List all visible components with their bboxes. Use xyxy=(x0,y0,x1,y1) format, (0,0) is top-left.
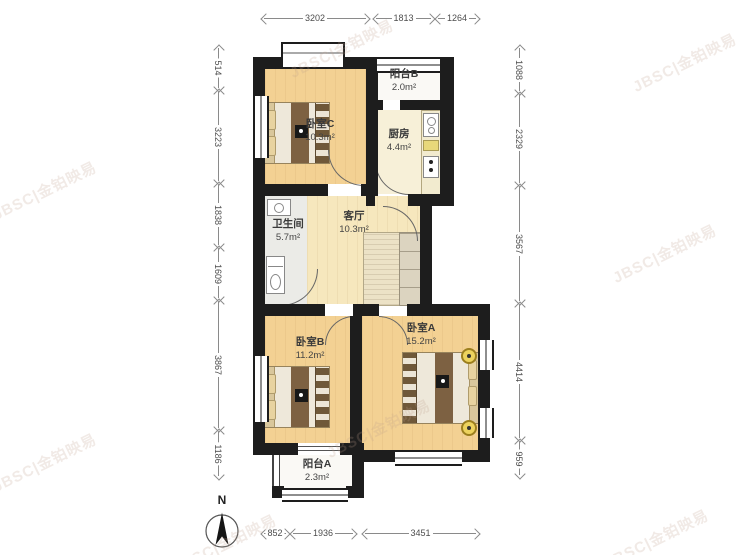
dimension-arrow xyxy=(434,13,445,24)
room-area: 15.2m² xyxy=(406,336,436,348)
watermark: JBSC|金铂映易 xyxy=(0,156,100,225)
tv-box xyxy=(295,389,308,402)
room-label-balcony-a: 阳台A 2.3m² xyxy=(303,458,332,484)
dimension-label: 3867 xyxy=(213,353,223,377)
room-label-bedroom-a: 卧室A 15.2m² xyxy=(406,322,436,348)
dimension-label: 3223 xyxy=(213,124,223,148)
wardrobe xyxy=(403,353,417,423)
room-name: 厨房 xyxy=(388,128,409,140)
watermark: JBSC|金铂映易 xyxy=(601,504,712,555)
compass-needle-icon xyxy=(199,506,245,552)
bay-window xyxy=(281,42,345,69)
dimension-label: 1936 xyxy=(311,528,335,538)
dimension-label: 1186 xyxy=(213,442,223,465)
room-label-balcony-b: 阳台B 2.0m² xyxy=(390,68,419,94)
wall-segment xyxy=(366,194,375,206)
watermark: JBSC|金铂映易 xyxy=(629,28,740,97)
washbasin-icon xyxy=(267,199,291,216)
dimension-arrow xyxy=(213,428,224,439)
floorplan-canvas: 卧室C 10.3m² 阳台B 2.0m² 厨房 4.4m² 卫生间 5.7m² … xyxy=(0,0,740,555)
room-area: 11.2m² xyxy=(296,350,325,362)
pillow xyxy=(468,386,477,406)
dimension-arrow xyxy=(514,44,525,55)
wall-lamp-icon xyxy=(461,420,477,436)
dimension-arrow xyxy=(213,181,224,192)
room-area: 10.3m² xyxy=(305,132,335,144)
room-name: 阳台B xyxy=(390,68,419,80)
dimension-label: 3567 xyxy=(514,232,524,256)
wall-segment xyxy=(353,304,379,316)
dimension-label: 1813 xyxy=(391,13,415,23)
dimension-arrow xyxy=(514,301,525,312)
room-name: 卧室A xyxy=(407,322,436,334)
dimension-arrow xyxy=(213,298,224,309)
watermark: JBSC|金铂映易 xyxy=(609,219,720,288)
sofa xyxy=(399,232,421,306)
room-area: 10.3m² xyxy=(339,224,369,236)
wall-segment xyxy=(350,316,362,455)
dimension-arrow xyxy=(213,469,224,480)
room-area: 2.3m² xyxy=(303,472,332,484)
dimension-label: 852 xyxy=(265,528,284,538)
room-name: 卧室B xyxy=(296,336,325,348)
dimension-arrow xyxy=(469,528,480,539)
window xyxy=(253,356,269,422)
cutting-board-icon xyxy=(423,140,439,151)
window xyxy=(478,408,494,438)
dimension-label: 1609 xyxy=(213,261,223,285)
dimension-label: 2329 xyxy=(514,127,524,151)
wall-segment xyxy=(253,184,328,196)
room-name: 阳台A xyxy=(303,458,332,470)
dimension-arrow xyxy=(514,438,525,449)
wall-segment xyxy=(478,304,490,462)
dimension-label: 1264 xyxy=(445,13,469,23)
room-label-living: 客厅 10.3m² xyxy=(339,210,369,236)
dimension-arrow xyxy=(469,13,480,24)
room-name: 卧室C xyxy=(306,118,335,130)
room-name: 卫生间 xyxy=(272,218,304,230)
dimension-arrow xyxy=(289,528,300,539)
dimension-label: 1088 xyxy=(514,57,524,81)
wall-segment xyxy=(420,206,432,316)
dimension-label: 3451 xyxy=(408,528,432,538)
dimension-label: 1838 xyxy=(213,203,223,227)
dimension-arrow xyxy=(514,183,525,194)
stove-icon xyxy=(423,156,439,178)
bed-bedroom-b xyxy=(264,366,330,428)
sink-icon xyxy=(423,113,439,137)
blanket xyxy=(435,353,453,423)
dimension-arrow xyxy=(346,528,357,539)
window xyxy=(478,340,494,370)
window xyxy=(395,450,462,466)
room-area: 5.7m² xyxy=(272,232,304,244)
watermark: JBSC|金铂映易 xyxy=(0,428,100,497)
dimension-arrow xyxy=(361,528,372,539)
dimension-label: 4414 xyxy=(514,359,524,383)
wardrobe xyxy=(315,367,329,427)
dimension-label: 514 xyxy=(213,58,223,77)
tv-box xyxy=(436,375,449,388)
dimension-arrow xyxy=(514,468,525,479)
room-label-kitchen: 厨房 4.4m² xyxy=(387,128,411,154)
room-label-bathroom: 卫生间 5.7m² xyxy=(272,218,304,244)
sliding-door xyxy=(298,446,340,452)
dimension-arrow xyxy=(359,13,370,24)
compass: N xyxy=(199,494,245,555)
wall-segment xyxy=(400,100,454,110)
wall-segment xyxy=(366,57,378,196)
dimension-arrow xyxy=(514,91,525,102)
wall-lamp-icon xyxy=(461,348,477,364)
room-label-bedroom-c: 卧室C 10.3m² xyxy=(305,118,335,144)
wall-segment xyxy=(440,106,454,206)
room-area: 4.4m² xyxy=(387,142,411,154)
dimension-label: 959 xyxy=(514,449,524,468)
wall-segment xyxy=(253,443,298,455)
wall-segment xyxy=(408,194,454,206)
dimension-arrow xyxy=(260,13,271,24)
room-name: 客厅 xyxy=(343,210,364,222)
dimension-arrow xyxy=(213,88,224,99)
window xyxy=(282,488,348,502)
window xyxy=(253,96,269,158)
wall-segment xyxy=(253,304,325,316)
wall-segment xyxy=(377,100,383,110)
wall-segment xyxy=(361,450,397,462)
dimension-label: 3202 xyxy=(303,13,327,23)
dimension-arrow xyxy=(213,44,224,55)
room-area: 2.0m² xyxy=(390,82,419,94)
room-label-bedroom-b: 卧室B 11.2m² xyxy=(296,336,325,362)
dimension-arrow xyxy=(372,13,383,24)
living-rug xyxy=(363,232,403,306)
dimension-arrow xyxy=(213,245,224,256)
compass-north-label: N xyxy=(199,494,245,506)
